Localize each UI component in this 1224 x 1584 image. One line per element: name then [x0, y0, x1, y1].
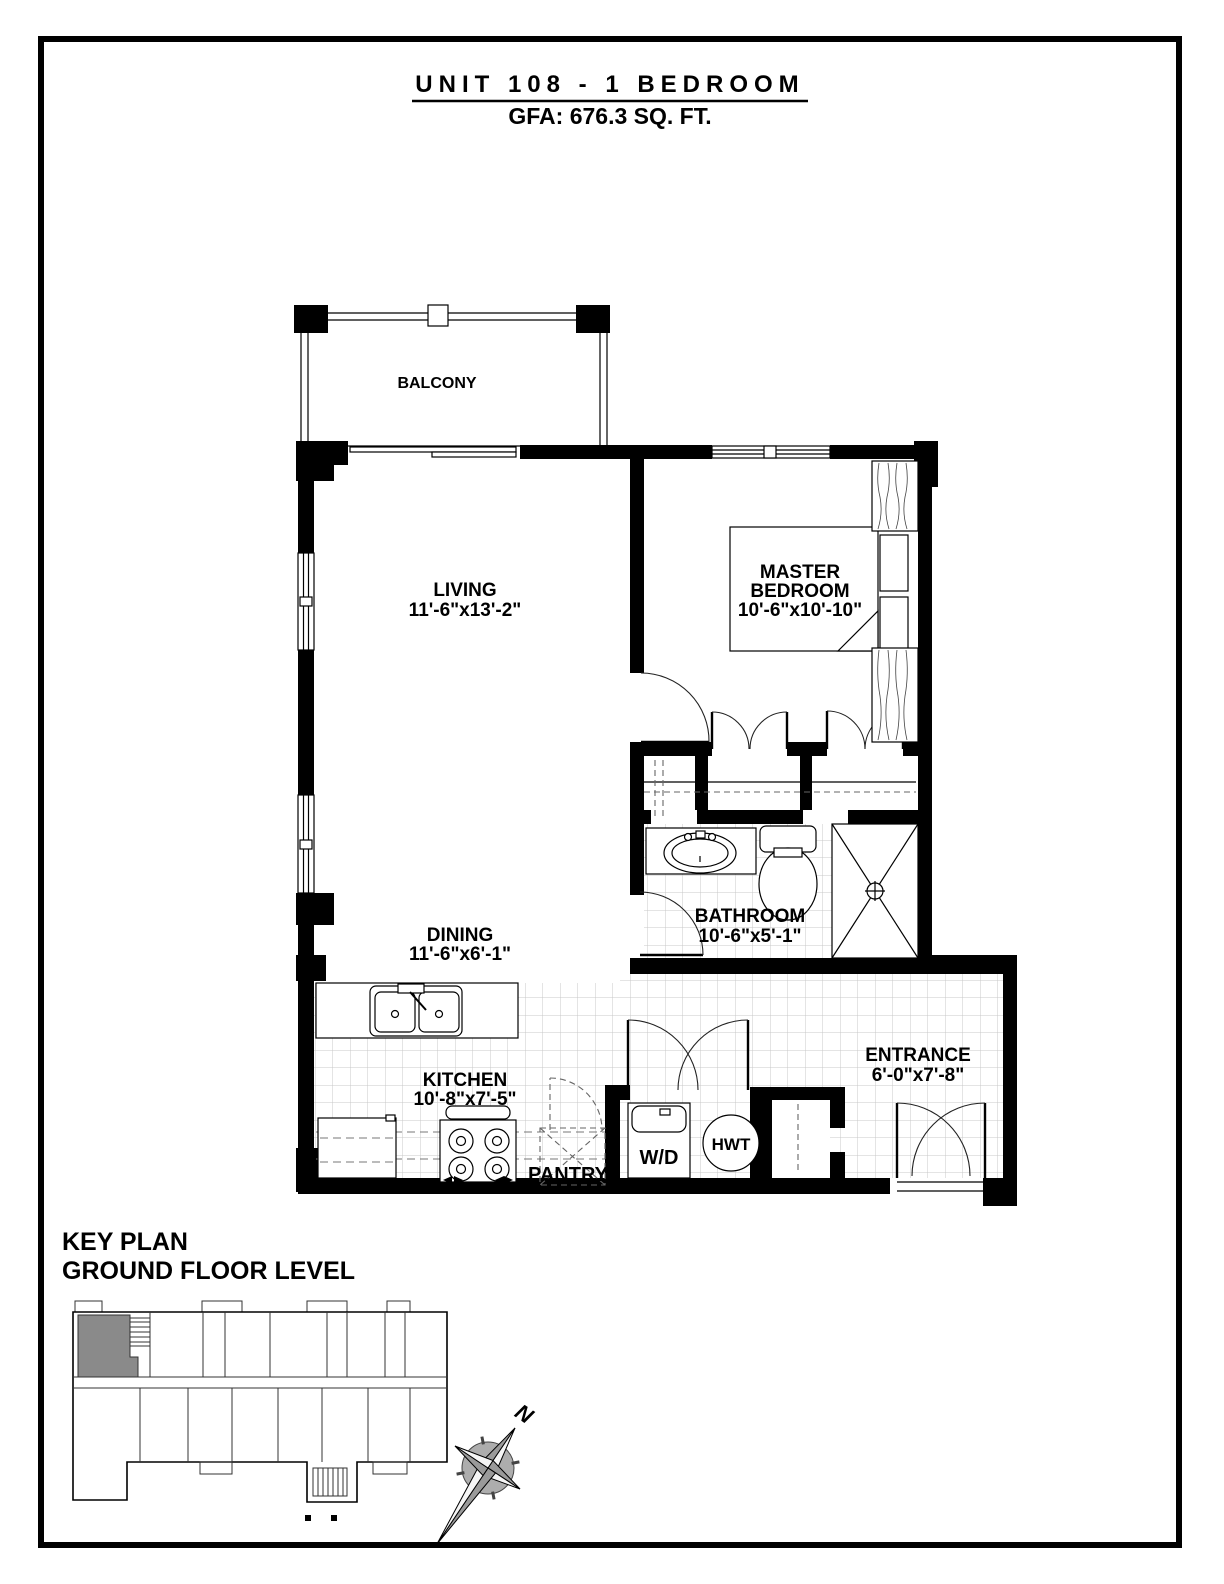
key-plan-subtitle: GROUND FLOOR LEVEL [62, 1257, 355, 1285]
kitchen-label: KITCHEN [423, 1070, 507, 1091]
stairwell [130, 1318, 150, 1346]
nightstand [880, 597, 908, 649]
balcony: BALCONY [294, 305, 610, 445]
dining-label: DINING [427, 925, 494, 946]
key-plan: KEY PLAN GROUND FLOOR LEVEL [62, 1228, 447, 1521]
balcony-post [294, 305, 328, 333]
faucet-icon [696, 831, 705, 838]
bedroom-window [712, 446, 830, 458]
washer-dryer-label: W/D [640, 1147, 679, 1169]
wardrobe [872, 648, 918, 742]
balcony-label: BALCONY [397, 375, 476, 392]
stove [440, 1106, 516, 1184]
living-window-upper [298, 553, 314, 650]
kitchen-dims: 10'-8"x7'-5" [413, 1089, 516, 1110]
hot-water-tank-label: HWT [712, 1135, 751, 1154]
unit-title: UNIT 108 - 1 BEDROOM [415, 71, 804, 98]
fridge [318, 1115, 396, 1178]
dining-window [298, 795, 314, 893]
living-label: LIVING [433, 580, 496, 601]
wardrobe [872, 461, 918, 531]
balcony-sliding-door [348, 446, 520, 457]
bathroom-label: BATHROOM [695, 906, 805, 927]
bedroom-door [641, 673, 709, 742]
master-bedroom-label2: BEDROOM [750, 581, 849, 602]
coat-closet-floor [772, 1100, 830, 1178]
kitchen-sink [370, 984, 462, 1036]
vanity-sink [646, 828, 756, 874]
title-block: UNIT 108 - 1 BEDROOM GFA: 676.3 SQ. FT. [412, 71, 808, 129]
gfa-label: GFA: 676.3 SQ. FT. [508, 103, 711, 129]
dining-dims: 11'-6"x6'-1" [409, 944, 511, 965]
faucet-handle-icon [685, 834, 692, 841]
master-bedroom-label: MASTER [760, 562, 841, 583]
north-label: N [511, 1399, 539, 1429]
shower [832, 824, 918, 958]
highlighted-unit [78, 1315, 138, 1377]
compass-rose-icon: N [437, 1399, 539, 1544]
pantry-label: PANTRY [528, 1164, 609, 1186]
master-bedroom-dims: 10'-6"x10'-10" [738, 600, 862, 621]
nightstand [880, 535, 908, 591]
entrance-dims: 6'-0"x7'-8" [872, 1065, 965, 1086]
floor-plan-sheet: UNIT 108 - 1 BEDROOM GFA: 676.3 SQ. FT. … [0, 0, 1224, 1584]
balcony-column [428, 305, 448, 326]
living-dims: 11'-6"x13'-2" [409, 600, 522, 621]
bathroom-dims: 10'-6"x5'-1" [698, 926, 801, 947]
balcony-post [576, 305, 610, 333]
key-plan-title: KEY PLAN [62, 1228, 188, 1256]
entrance-label: ENTRANCE [865, 1045, 971, 1066]
faucet-handle-icon [709, 834, 716, 841]
